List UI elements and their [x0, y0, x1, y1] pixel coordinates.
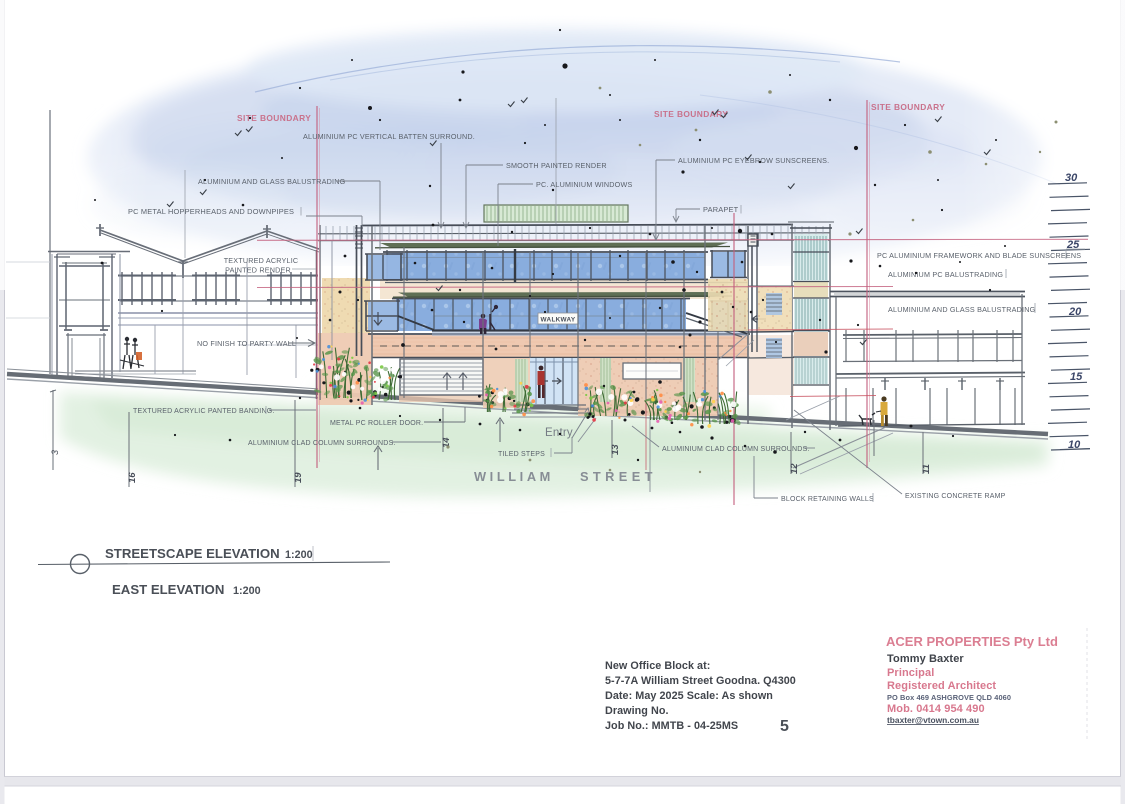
svg-text:SITE BOUNDARY: SITE BOUNDARY — [871, 102, 945, 112]
svg-text:PO Box 469 ASHGROVE QLD 4060: PO Box 469 ASHGROVE QLD 4060 — [887, 693, 1011, 702]
svg-text:5: 5 — [780, 718, 789, 735]
svg-text:TILED STEPS: TILED STEPS — [498, 451, 545, 458]
svg-text:1:200: 1:200 — [285, 549, 313, 561]
svg-text:Job No.: MMTB - 04-25MS: Job No.: MMTB - 04-25MS — [605, 720, 738, 732]
svg-text:tbaxter@vtown.com.au: tbaxter@vtown.com.au — [887, 715, 979, 725]
svg-text:20: 20 — [1068, 306, 1082, 318]
svg-text:12: 12 — [789, 463, 800, 474]
svg-text:3: 3 — [50, 450, 60, 455]
svg-text:WALKWAY: WALKWAY — [541, 317, 576, 324]
svg-text:New Office Block at:: New Office Block at: — [605, 660, 710, 672]
svg-text:STREET: STREET — [580, 469, 657, 484]
svg-text:SMOOTH PAINTED RENDER: SMOOTH PAINTED RENDER — [506, 161, 607, 170]
svg-text:ALUMINIUM PC BALUSTRADING: ALUMINIUM PC BALUSTRADING — [888, 270, 1003, 279]
svg-text:PC METAL HOPPERHEADS AND DOWNP: PC METAL HOPPERHEADS AND DOWNPIPES — [128, 207, 294, 216]
svg-text:ALUMINIUM PC EYEBROW SUNSCREEN: ALUMINIUM PC EYEBROW SUNSCREENS. — [678, 156, 829, 165]
svg-text:Principal: Principal — [887, 667, 934, 679]
svg-text:1:200: 1:200 — [233, 585, 261, 597]
svg-text:11: 11 — [921, 464, 932, 474]
svg-text:NO FINISH TO PARTY WALL: NO FINISH TO PARTY WALL — [197, 339, 296, 348]
svg-text:BLOCK RETAINING WALLS: BLOCK RETAINING WALLS — [781, 496, 874, 503]
svg-text:PC. ALUMINIUM WINDOWS: PC. ALUMINIUM WINDOWS — [536, 180, 632, 189]
svg-text:PARAPET: PARAPET — [703, 205, 739, 214]
svg-text:EXISTING CONCRETE RAMP: EXISTING CONCRETE RAMP — [905, 493, 1006, 500]
svg-text:ACER PROPERTIES Pty Ltd: ACER PROPERTIES Pty Ltd — [886, 634, 1058, 649]
svg-text:Drawing No.: Drawing No. — [605, 705, 669, 717]
svg-text:WILLIAM: WILLIAM — [474, 469, 554, 484]
svg-text:13: 13 — [610, 444, 621, 455]
svg-text:SITE BOUNDARY: SITE BOUNDARY — [237, 113, 311, 123]
svg-text:TEXTURED ACRYLIC: TEXTURED ACRYLIC — [224, 256, 299, 265]
svg-text:14: 14 — [441, 437, 452, 448]
svg-text:TEXTURED ACRYLIC PANTED BANDIN: TEXTURED ACRYLIC PANTED BANDING. — [133, 408, 275, 415]
svg-text:ALUMINIUM AND GLASS BALUSTRADI: ALUMINIUM AND GLASS BALUSTRADING — [198, 177, 346, 186]
svg-text:Tommy Baxter: Tommy Baxter — [887, 653, 964, 665]
svg-text:ALUMINIUM CLAD COLUMN SURROUND: ALUMINIUM CLAD COLUMN SURROUNDS. — [248, 440, 396, 447]
svg-text:STREETSCAPE ELEVATION: STREETSCAPE ELEVATION — [105, 546, 280, 561]
svg-text:16: 16 — [127, 472, 138, 483]
svg-text:Mob. 0414 954 490: Mob. 0414 954 490 — [887, 703, 985, 715]
svg-text:5-7-7A William Street Goodna.: 5-7-7A William Street Goodna. Q4300 — [605, 675, 796, 687]
svg-text:ALUMINIUM CLAD COLUMN SURROUND: ALUMINIUM CLAD COLUMN SURROUNDS. — [662, 446, 810, 453]
svg-text:30: 30 — [1065, 172, 1078, 184]
svg-text:ALUMINIUM AND GLASS BALUSTRADI: ALUMINIUM AND GLASS BALUSTRADING — [888, 305, 1036, 314]
svg-text:PAINTED RENDER: PAINTED RENDER — [225, 266, 291, 275]
svg-text:METAL PC ROLLER DOOR.: METAL PC ROLLER DOOR. — [330, 420, 423, 427]
svg-text:19: 19 — [293, 472, 304, 483]
svg-text:Date: May 2025 Scale: As: Date: May 2025 Scale: As shown — [605, 690, 773, 702]
svg-text:ALUMINIUM PC VERTICAL BATTEN S: ALUMINIUM PC VERTICAL BATTEN SURROUND. — [303, 132, 475, 141]
svg-text:PC ALUMINIUM FRAMEWORK AND BLA: PC ALUMINIUM FRAMEWORK AND BLADE SUNSCRE… — [877, 251, 1081, 260]
svg-text:Entry: Entry — [545, 427, 573, 439]
svg-text:EAST ELEVATION: EAST ELEVATION — [112, 582, 224, 597]
svg-text:15: 15 — [1070, 371, 1083, 383]
svg-text:Registered Architect: Registered Architect — [887, 680, 996, 692]
